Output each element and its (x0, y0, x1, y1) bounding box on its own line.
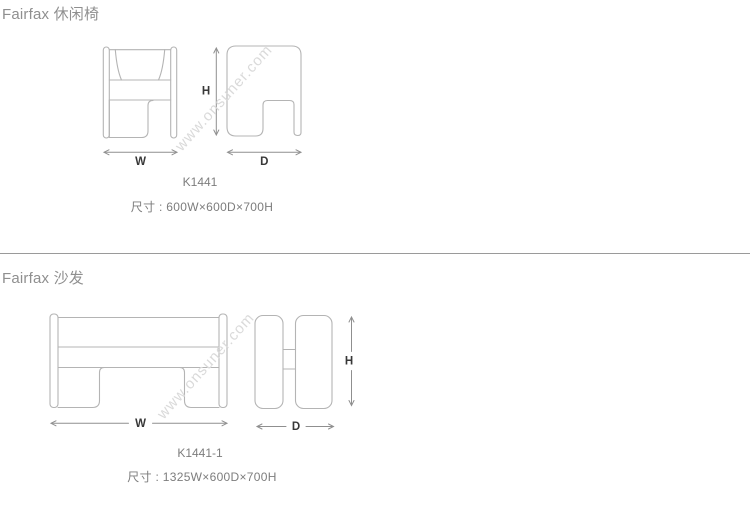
chair-front-backrest-right-seam (159, 50, 165, 80)
sofa-side-front-slab (296, 316, 333, 409)
sofa-height-dimension: H (345, 317, 354, 406)
sofa-size-text: 尺寸 : 1325W×600D×700H (2, 468, 402, 485)
sofa-width-dimension: W (51, 418, 227, 430)
chair-depth-label: D (260, 156, 268, 168)
sofa-depth-dimension: D (257, 421, 334, 433)
sofa-front-right-leg-panel (180, 368, 220, 408)
sofa-front-left-armrest (50, 314, 58, 408)
sofa-side-view-drawing (255, 316, 332, 409)
sofa-technical-drawing: W H D (0, 300, 380, 440)
chair-front-leg-panel (109, 100, 153, 138)
chair-front-view-drawing (103, 47, 176, 138)
chair-front-right-armrest (171, 47, 177, 138)
sofa-height-label: H (345, 356, 353, 368)
chair-depth-dimension: D (228, 150, 302, 168)
chair-size-text: 尺寸 : 600W×600D×700H (2, 198, 402, 215)
sofa-front-right-armrest (219, 314, 227, 408)
sofa-front-left-leg-panel (58, 368, 105, 408)
chair-technical-drawing: W H D (0, 30, 340, 170)
chair-width-dimension: W (104, 150, 177, 168)
chair-width-label: W (135, 156, 146, 168)
sofa-front-view-drawing (50, 314, 227, 408)
section-divider (0, 253, 750, 254)
chair-front-left-armrest (103, 47, 109, 138)
sofa-width-label: W (135, 418, 146, 430)
chair-side-view-drawing (227, 46, 301, 136)
chair-model-code: K1441 (0, 175, 400, 189)
section-title-sofa: Fairfax 沙发 (2, 267, 84, 288)
sofa-side-back-slab (255, 316, 283, 409)
chair-height-label: H (202, 86, 210, 98)
chair-front-backrest-left-seam (115, 50, 121, 80)
chair-side-profile (227, 46, 301, 136)
sofa-depth-label: D (292, 421, 300, 433)
sofa-model-code: K1441-1 (0, 446, 400, 460)
chair-height-dimension: H (202, 48, 219, 135)
furniture-spec-page: Fairfax 休闲椅 W (0, 0, 750, 530)
section-title-chair: Fairfax 休闲椅 (2, 3, 99, 24)
